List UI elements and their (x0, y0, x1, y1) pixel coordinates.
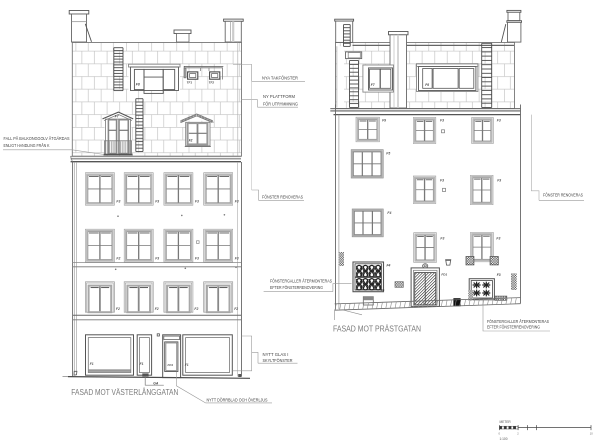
svg-text:GA: GA (153, 381, 159, 385)
svg-text:F2: F2 (155, 307, 159, 311)
svg-text:GB: GB (381, 288, 385, 292)
svg-text:F3: F3 (440, 236, 444, 240)
svg-text:FÖNSTER RENOVERAS: FÖNSTER RENOVERAS (262, 193, 303, 199)
svg-text:F1: F1 (185, 363, 189, 367)
svg-text:F8: F8 (136, 83, 140, 87)
svg-text:F7: F7 (115, 115, 119, 119)
svg-text:METER: METER (500, 420, 512, 424)
svg-text:F3: F3 (496, 236, 500, 240)
svg-text:EFTER FÖNSTERRENOVERING: EFTER FÖNSTERRENOVERING (487, 325, 540, 330)
svg-text:TF2: TF2 (209, 80, 215, 84)
svg-text:F3: F3 (497, 273, 501, 277)
svg-text:F7: F7 (371, 83, 375, 87)
svg-text:ENLIGT HANDLING FRÅN K: ENLIGT HANDLING FRÅN K (4, 143, 50, 148)
svg-text:F3: F3 (155, 200, 159, 204)
svg-text:F3: F3 (195, 200, 199, 204)
svg-text:F4: F4 (387, 211, 391, 215)
svg-text:F2: F2 (189, 139, 193, 143)
svg-text:F3: F3 (195, 257, 199, 261)
svg-text:FÖNSTERGALLER ÅTERMONTERAS: FÖNSTERGALLER ÅTERMONTERAS (487, 319, 549, 324)
svg-text:FD1: FD1 (168, 363, 174, 367)
svg-text:F6: F6 (425, 83, 429, 87)
svg-text:F3: F3 (235, 257, 239, 261)
svg-text:F3: F3 (440, 178, 444, 182)
svg-text:F4: F4 (387, 264, 391, 268)
svg-text:SKYLTFÖNSTER: SKYLTFÖNSTER (263, 357, 294, 363)
svg-text:FALL PÅ BALKONGGOLV ÅTGÄRDAS: FALL PÅ BALKONGGOLV ÅTGÄRDAS (4, 136, 70, 141)
svg-text:F3: F3 (116, 200, 120, 204)
svg-text:F2: F2 (194, 307, 198, 311)
svg-text:F3: F3 (155, 257, 159, 261)
svg-text:EFTER FÖNSTERRENOVERING: EFTER FÖNSTERRENOVERING (270, 285, 323, 290)
svg-text:F5: F5 (386, 152, 390, 156)
svg-text:F3: F3 (497, 178, 501, 182)
svg-text:F2: F2 (234, 307, 238, 311)
svg-text:FASAD MOT PRÄSTGATAN: FASAD MOT PRÄSTGATAN (333, 325, 421, 334)
svg-text:NYA TAKFÖNSTER: NYA TAKFÖNSTER (262, 74, 299, 80)
svg-text:F1: F1 (90, 362, 94, 366)
svg-text:FD1: FD1 (441, 272, 447, 276)
svg-text:FÖNSTER RENOVERAS: FÖNSTER RENOVERAS (543, 193, 583, 198)
svg-text:NYTT DÖRRBLAD OCH ÖVERLJUS: NYTT DÖRRBLAD OCH ÖVERLJUS (207, 397, 268, 402)
svg-text:FÖR UTRYMMNING: FÖR UTRYMMNING (263, 100, 298, 106)
svg-text:FÖNSTERGALLER ÅTERMONTERAS: FÖNSTERGALLER ÅTERMONTERAS (270, 278, 332, 283)
svg-text:NY PLATTFORM: NY PLATTFORM (263, 94, 295, 99)
svg-text:F3: F3 (497, 119, 501, 123)
svg-text:F2: F2 (116, 257, 120, 261)
svg-text:F3: F3 (235, 200, 239, 204)
svg-text:F2: F2 (116, 307, 120, 311)
svg-text:F9: F9 (382, 119, 386, 123)
svg-text:1:100: 1:100 (500, 437, 508, 441)
svg-text:NYTT GLAS I: NYTT GLAS I (263, 352, 289, 357)
svg-text:TF1: TF1 (187, 80, 193, 84)
svg-text:FASAD MOT VÄSTERLÅNGGATAN: FASAD MOT VÄSTERLÅNGGATAN (71, 388, 178, 397)
svg-text:F1: F1 (140, 362, 144, 366)
svg-text:F3: F3 (440, 119, 444, 123)
